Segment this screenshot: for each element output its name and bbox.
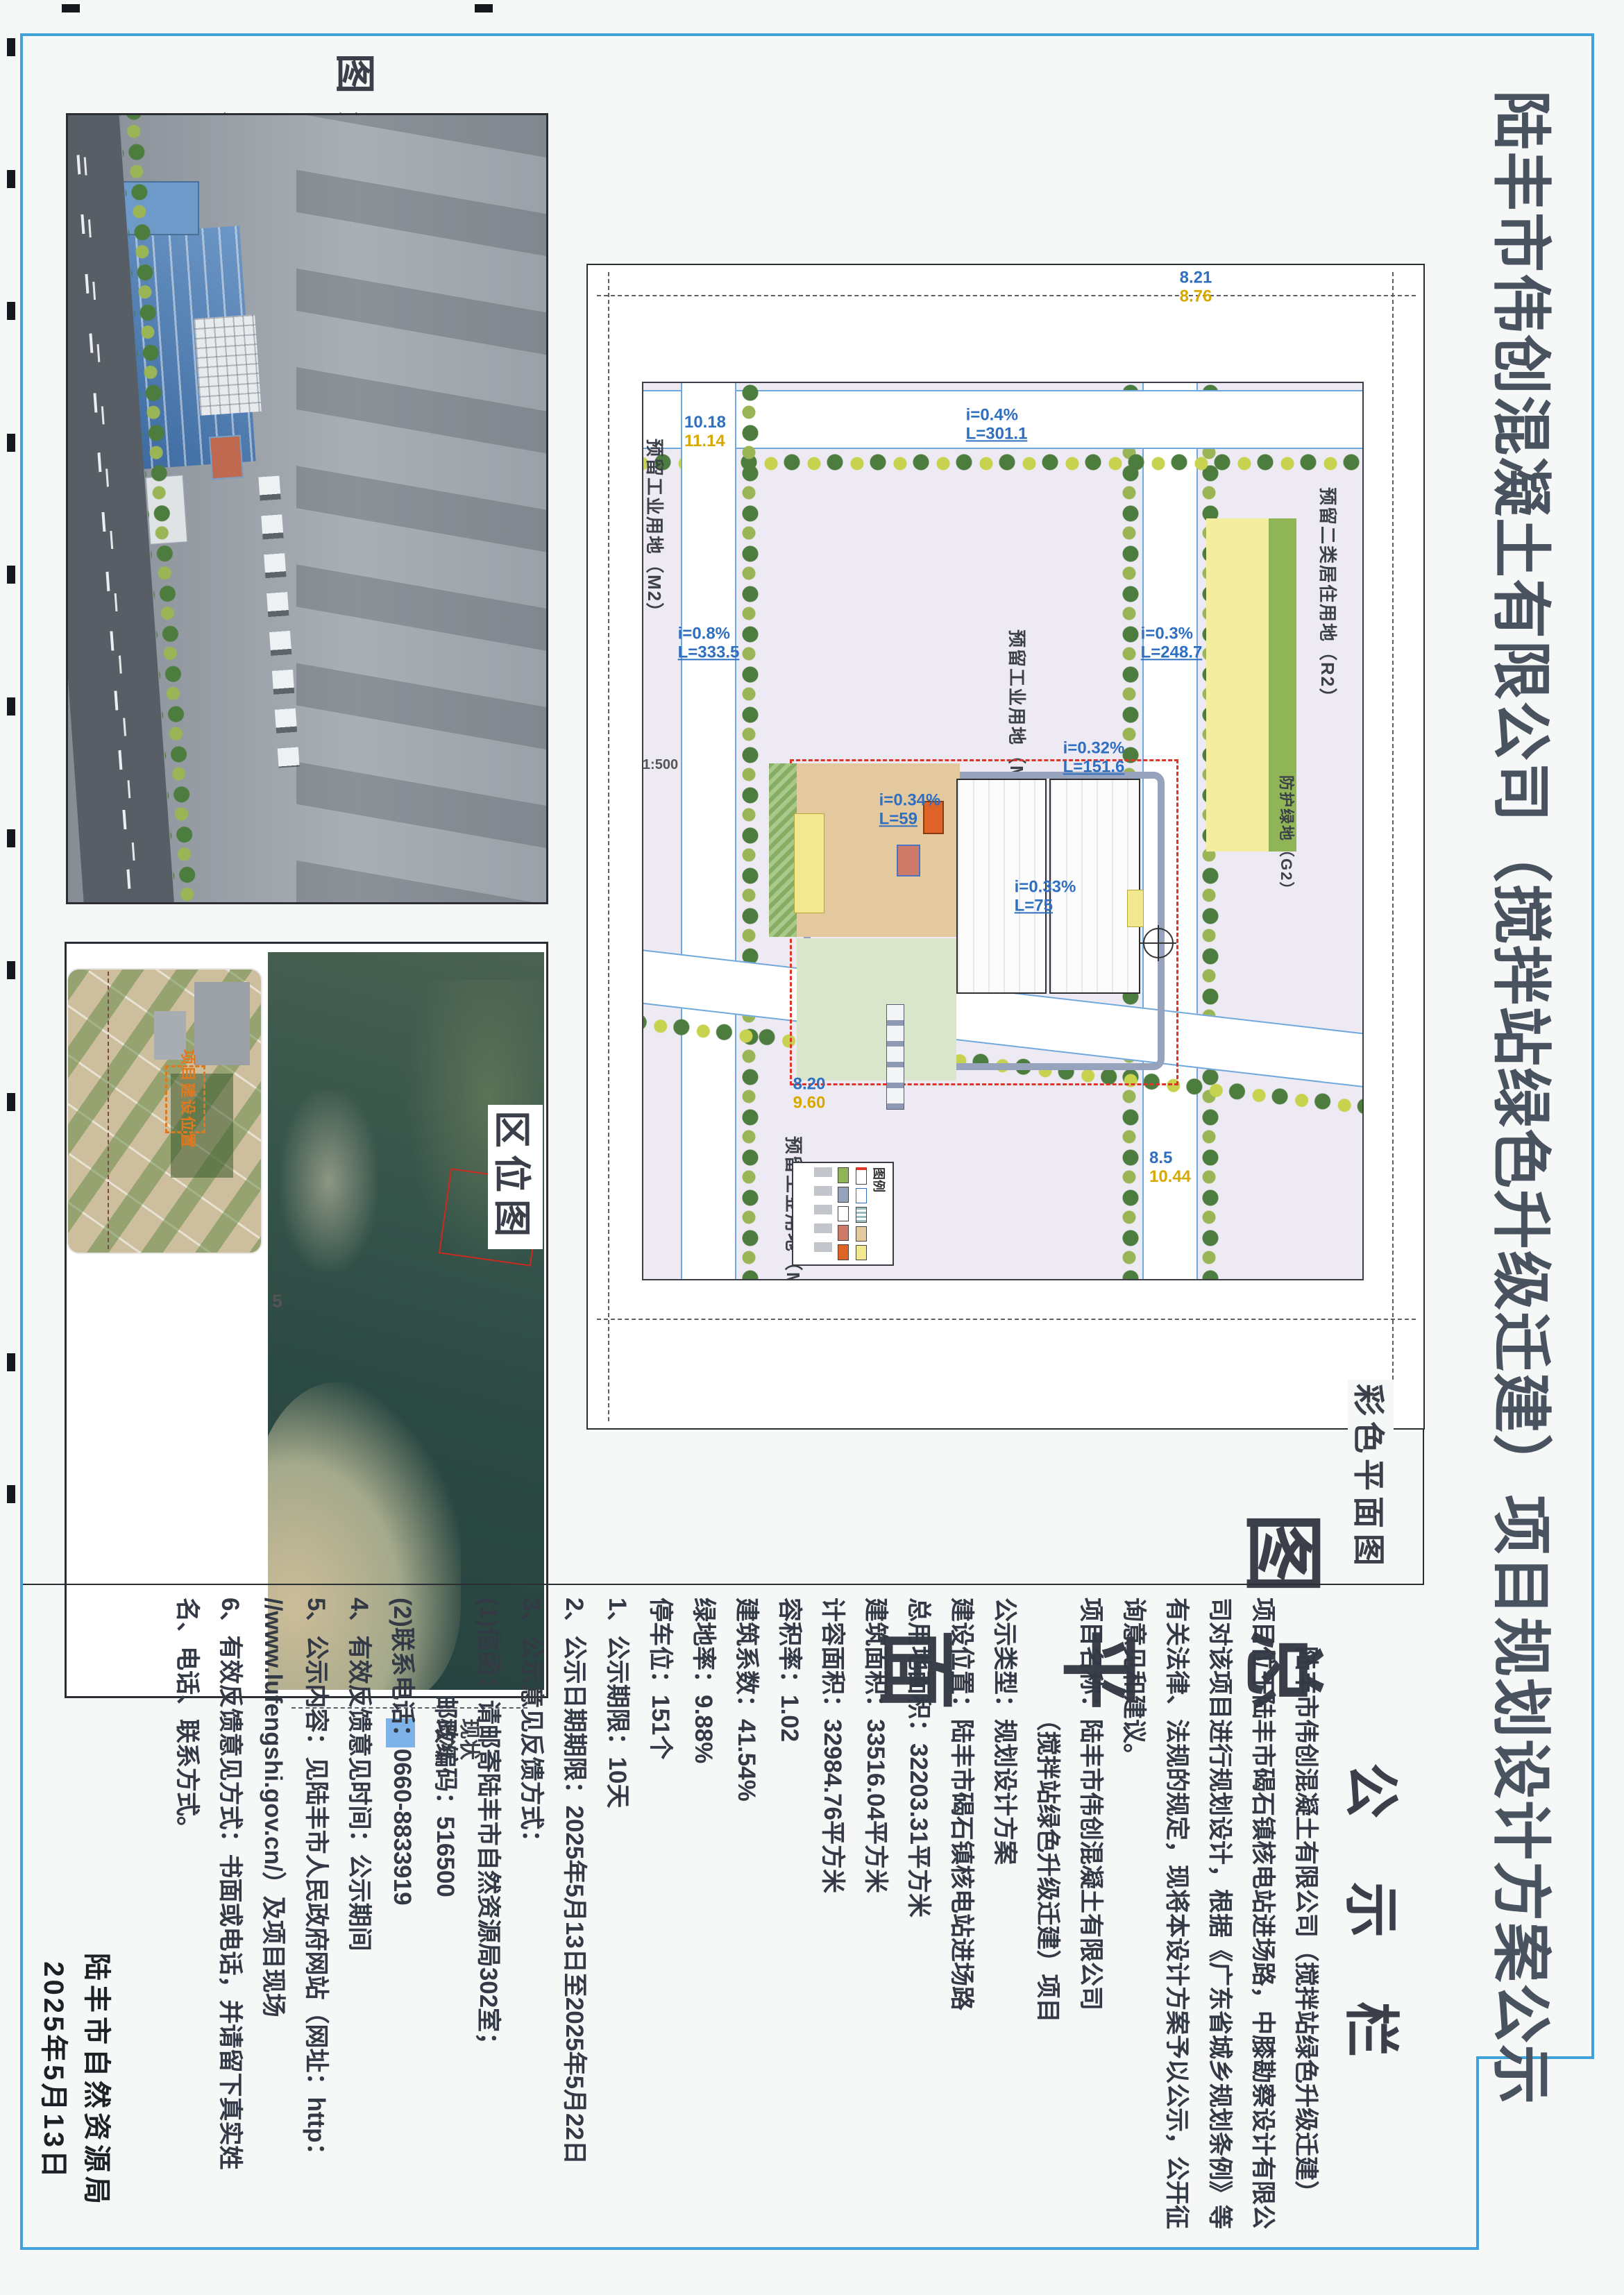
photo-trucks bbox=[258, 475, 299, 768]
legend-swatch bbox=[856, 1207, 867, 1222]
legend-swatch bbox=[856, 1245, 867, 1260]
notice-line: 容积率：1.02 bbox=[768, 1598, 811, 2243]
notice-line: 建设位置：陆丰市碣石镇核电站进场路 bbox=[940, 1598, 983, 2243]
legend-swatch bbox=[856, 1167, 867, 1185]
notice-line: 司对该项目进行规划设计，根据《广东省城乡规划条例》等 bbox=[1198, 1598, 1241, 2243]
notice-line: 6、有效反馈意见方式：书面或电话，并请留下真实姓 bbox=[208, 1598, 251, 2243]
inset-boundary-line bbox=[108, 972, 109, 1249]
elevation-label: 8.21 8.76 bbox=[1180, 268, 1212, 305]
scan-tick bbox=[7, 829, 15, 847]
render-photo bbox=[68, 115, 546, 902]
notice-line: 公示类型：规划设计方案 bbox=[983, 1598, 1026, 2243]
notice-signature-date: 2025年5月13日 bbox=[36, 1598, 76, 2180]
frame-top bbox=[1591, 33, 1594, 2059]
inset-industrial-patch bbox=[194, 982, 250, 1065]
grade-label: i=0.32%L=151.6 bbox=[1063, 738, 1125, 776]
landuse-label-m2b: 预留工业用地（M2） bbox=[643, 439, 668, 622]
notice-line: 邮政编码：516500 bbox=[423, 1598, 466, 2243]
legend-row bbox=[838, 1167, 849, 1260]
legend-swatch bbox=[856, 1226, 867, 1242]
notice-line: （搅拌站绿色升级迁建）项目 bbox=[1026, 1598, 1069, 2243]
parcel-green-hatch bbox=[769, 763, 797, 937]
notice-line: 陆丰市伟创混凝土有限公司（搅拌站绿色升级迁建） bbox=[1284, 1598, 1327, 2243]
notice-line: 2、公示日期期限：2025年5月13日至2025年5月22日 bbox=[552, 1598, 595, 2243]
notice-left-border bbox=[23, 1584, 1424, 1585]
grade-label: i=0.3%L=248.7 bbox=[1141, 624, 1203, 661]
scan-tick bbox=[7, 302, 15, 320]
legend-swatch bbox=[838, 1187, 849, 1203]
notice-line: 绿地率：9.88% bbox=[682, 1598, 725, 2243]
frame-right bbox=[20, 2247, 1479, 2250]
protect-yellow-band bbox=[1206, 518, 1269, 852]
photo-white-canopy bbox=[194, 314, 262, 416]
scan-tick bbox=[7, 38, 15, 56]
basketball-court bbox=[897, 845, 920, 876]
site-marker-label: 项目建设位置 bbox=[178, 1049, 200, 1149]
grade-label: i=0.34%L=59 bbox=[879, 790, 941, 828]
sat-town-patch bbox=[280, 1091, 378, 1271]
sheet-number: 5 bbox=[272, 1291, 282, 1312]
plan-axis-mark bbox=[608, 272, 609, 1421]
location-panel-label: 区位图 bbox=[488, 1105, 543, 1249]
notice-line: 建筑系数：41.54% bbox=[725, 1598, 768, 2243]
compass-bar bbox=[1158, 925, 1159, 961]
caption-color-plan: 彩色平面图 bbox=[1348, 1380, 1394, 1575]
scanned-notice-page: 陆丰市伟创混凝土有限公司（搅拌站绿色升级迁建）项目规划设计方案公示 8.21 8… bbox=[0, 0, 1624, 2295]
legend-swatch bbox=[856, 1188, 867, 1203]
legend-swatch bbox=[838, 1206, 849, 1222]
notice-signature: 陆丰市自然资源局 bbox=[79, 1598, 119, 2208]
notice-line: 5、公示内容：见陆丰市人民政府网站（网址：http： bbox=[294, 1598, 337, 2243]
frame-bottom bbox=[20, 33, 23, 2250]
scan-tick bbox=[62, 4, 80, 12]
notice-line: //www.lufengshi.gov.cn/）及项目现场 bbox=[251, 1598, 294, 2243]
photo-court bbox=[209, 434, 244, 480]
notice-line: 项目名称：陆丰市伟创混凝土有限公司 bbox=[1069, 1598, 1112, 2243]
notice-body: 陆丰市伟创混凝土有限公司（搅拌站绿色升级迁建）项目位于陆丰市碣石镇核电站进场路，… bbox=[165, 1598, 1327, 2243]
plan-road-south bbox=[681, 383, 736, 1280]
notice-line: (1)信函：请邮寄陆丰市自然资源局302室； bbox=[466, 1598, 509, 2243]
scan-tick bbox=[7, 697, 15, 715]
legend-caption-marks bbox=[814, 1167, 832, 1260]
notice-line: (2)联系电话：0660-8833919 bbox=[380, 1598, 423, 2243]
notice-divider-extension bbox=[1423, 1430, 1424, 1584]
legend-swatch bbox=[838, 1225, 849, 1241]
elevation-label: 8.209.60 bbox=[793, 1074, 826, 1112]
scan-tick bbox=[7, 1353, 15, 1371]
page-title: 陆丰市伟创混凝土有限公司（搅拌站绿色升级迁建）项目规划设计方案公示 bbox=[1483, 90, 1570, 2172]
elevation-label: 10.1811.14 bbox=[684, 413, 726, 450]
legend-swatch bbox=[838, 1244, 849, 1260]
notice-line: 项目位于陆丰市碣石镇核电站进场路，中膝勘察设计有限公 bbox=[1241, 1598, 1284, 2243]
plan-axis-mark bbox=[597, 1319, 1416, 1320]
scan-tick bbox=[7, 434, 15, 452]
north-compass-icon bbox=[1143, 928, 1174, 958]
satellite-inset-image bbox=[67, 968, 262, 1254]
notice-line: 总用地面积：32203.31平方米 bbox=[897, 1598, 940, 2243]
scan-tick bbox=[7, 566, 15, 584]
notice-line: 3、公示意见反馈方式： bbox=[509, 1598, 552, 2243]
parcel-ground-green bbox=[797, 938, 956, 1081]
photo-lot bbox=[296, 115, 546, 902]
frame-left bbox=[20, 33, 1594, 36]
plan-axis-mark bbox=[597, 295, 1416, 296]
elevation-label: 8.510.44 bbox=[1149, 1149, 1191, 1186]
parking-stalls bbox=[1127, 890, 1144, 927]
plan-scale-note: 1:500 bbox=[643, 757, 678, 773]
site-plan-drawing: 预留二类居住用地（R2） 防护绿地（G2） 预留工业用地（M2） 预留工业用地（… bbox=[642, 382, 1364, 1280]
notice-line: 4、有效反馈意见时间：公示期间 bbox=[337, 1598, 380, 2243]
scan-tick bbox=[7, 1485, 15, 1503]
grade-label: i=0.8%L=333.5 bbox=[678, 624, 740, 661]
frame-notch bbox=[1476, 2056, 1479, 2250]
satellite-base-image bbox=[268, 952, 544, 1690]
notice-line: 计容面积：32984.76平方米 bbox=[811, 1598, 854, 2243]
scan-tick bbox=[7, 170, 15, 188]
plan-axis-mark bbox=[1392, 272, 1394, 1421]
scan-tick bbox=[475, 4, 493, 12]
legend-title: 图例 bbox=[870, 1167, 888, 1260]
notice-line: 1、公示期限：10天 bbox=[595, 1598, 638, 2243]
grade-label: i=0.33%L=75 bbox=[1015, 877, 1076, 915]
render-photo-panel bbox=[66, 113, 548, 904]
notice-line: 建筑面积：33516.04平方米 bbox=[854, 1598, 897, 2243]
notice-line: 名、电话、联系方式。 bbox=[165, 1598, 208, 2243]
scan-tick bbox=[7, 1093, 15, 1111]
parking-stalls bbox=[794, 813, 824, 913]
notice-line: 询意见和建议。 bbox=[1112, 1598, 1155, 2243]
legend-row bbox=[856, 1167, 867, 1260]
mixer-bays bbox=[886, 1004, 904, 1110]
scan-tick bbox=[7, 961, 15, 979]
landscape-sheet: 陆丰市伟创混凝土有限公司（搅拌站绿色升级迁建）项目规划设计方案公示 8.21 8… bbox=[0, 0, 1624, 2295]
landuse-label-r2: 预留二类居住用地（R2） bbox=[1316, 487, 1342, 707]
notice-heading: 公 示 栏 bbox=[1335, 1763, 1416, 2082]
grade-label: i=0.4%L=301.1 bbox=[966, 405, 1028, 443]
plan-legend: 图例 bbox=[792, 1162, 894, 1266]
notice-line: 有关法律、法规的规定，现将本设计方案予以公示，公开征 bbox=[1155, 1598, 1198, 2243]
legend-swatch bbox=[838, 1167, 849, 1183]
street-trees bbox=[739, 383, 760, 1280]
landuse-label-g2: 防护绿地（G2） bbox=[1276, 775, 1299, 898]
notice-line: 停车位：151个 bbox=[638, 1598, 682, 2243]
